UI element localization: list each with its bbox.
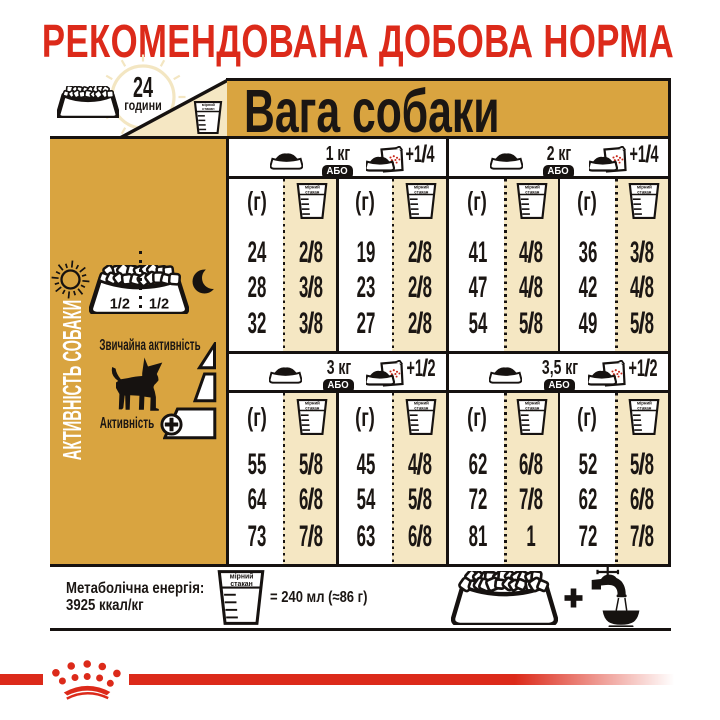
svg-text:мірний: мірний: [230, 573, 254, 581]
svg-text:стакан: стакан: [414, 405, 428, 410]
svg-text:стакан: стакан: [525, 405, 539, 410]
svg-text:стакан: стакан: [637, 405, 651, 410]
svg-text:стакан: стакан: [414, 189, 428, 194]
svg-text:стакан: стакан: [230, 581, 252, 588]
svg-text:стакан: стакан: [305, 405, 319, 410]
svg-text:стакан: стакан: [637, 189, 651, 194]
svg-text:стакан: стакан: [305, 189, 319, 194]
svg-text:стакан: стакан: [525, 189, 539, 194]
